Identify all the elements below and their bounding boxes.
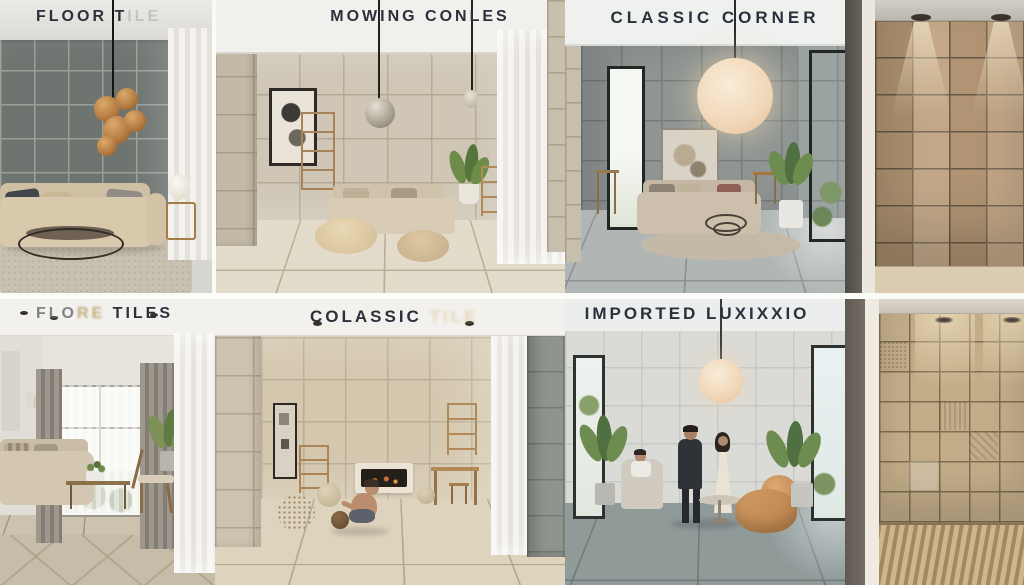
round-table-leg [718,500,721,520]
plant-pot [459,184,479,204]
ladder-shelf [301,112,335,190]
label-text-main: COLASSIC [310,307,422,326]
wall-tiles-pale [565,329,845,503]
recessed-spotlight [1003,317,1021,323]
sofa-base [0,451,94,505]
panel-label-classic-corner: CLASSIC CORNER [610,8,819,28]
tile-showroom-collage: FLOOR TILE [0,0,1024,585]
dark-pillar [845,0,862,293]
recessed-spotlight [935,317,953,323]
panel-top-right-classic-corner: CLASSIC CORNER [565,0,845,293]
sofa-arm [146,193,166,245]
ceiling-spotlight [20,311,28,315]
label-text-dark: TILES [105,305,173,322]
coffee-table-leg [70,485,72,509]
man-leg [693,485,700,523]
label-text-main: IMPORTED LUXIXXIO [585,304,810,323]
label-text-main: MOWING CONLES [330,8,509,25]
spotlight-glow [983,311,1024,411]
chair-leg [140,483,143,513]
tile-pattern-diagonal [969,431,998,460]
wire-coffee-table-small [713,222,741,236]
wood-ball-pendant [116,88,138,110]
spotlight-glow [915,311,975,411]
panel-bottom-middle-beige-playroom: COLASSIC TILE [215,299,565,585]
stone-ball-small [417,487,435,504]
desk-leg [434,471,437,505]
pillar-tiles-grey-right [527,299,565,557]
tile-pattern-dots [879,341,908,370]
man-suit-torso [678,439,702,489]
collage-bottom-row: FLORE TILES [0,299,1024,585]
panel-bottom-right-imported-lux-lounge: IMPORTED LUXIXXIO [565,299,845,585]
pouf [397,230,449,262]
coffee-table-leg [124,485,126,509]
seated-person-torso [631,461,651,477]
panel-label-colassic: COLASSIC TILE [310,307,478,327]
panel-divider [212,0,216,293]
stone-ball-medium [317,483,341,507]
floor-cushion [315,218,377,254]
coffee-table-frame [18,228,124,260]
plant-pot [791,483,813,507]
sheer-curtain [491,327,531,555]
panel-top-left-grey-living-room: FLOOR TILE [0,0,215,293]
console-table-leg [755,174,757,204]
table-plant [84,459,106,473]
side-table-leg [597,172,599,214]
desk-leg [474,471,477,505]
collage-top-row: FLOOR TILE [0,0,1024,293]
man-leg [682,485,689,523]
ball-pendant [699,359,743,403]
side-table-leg [614,172,616,214]
side-table-gold [166,202,196,240]
label-text-grey: FLO [36,305,77,322]
woman-face [718,436,728,446]
stone-ball-large [277,495,315,531]
wall-lamp [26,391,32,407]
ladder-shelf [447,403,477,455]
chair-seat [138,475,174,483]
man-hair [683,425,698,432]
label-text-main: FLOOR T [36,8,127,25]
pillar-tiles-right [547,0,565,252]
sheer-curtain-far-right [174,333,215,573]
window-right [809,50,845,242]
label-text-faint: ILE [127,8,161,25]
seated-person-hair [634,449,646,455]
panel-bottom-far-right-textured-wall [845,299,1024,585]
tall-picture-frame [273,403,297,479]
wall-edge-strip [862,0,875,293]
panel-top-middle-beige-lounge: MOWING CONLES [215,0,565,293]
ball-pendant [697,58,773,134]
panel-label-imported-lux: IMPORTED LUXIXXIO [585,304,810,324]
label-text-main: CLASSIC CORNER [610,8,819,27]
plant-pot-white [779,200,803,228]
dark-pillar [845,299,865,585]
wall-art-abstract [661,128,719,188]
panel-top-far-right-travertine-wall [845,0,1024,293]
panel-label-mowing-conles: MOWING CONLES [330,8,509,26]
pillar-tiles-left [215,299,261,547]
round-table-base [711,518,729,523]
panel-label-flor-tiles: FLORE TILES [36,305,173,323]
recessed-spotlight [911,14,931,21]
desk-top [431,467,479,471]
tile-pattern-light [909,461,938,490]
orange-sculptural-chair [735,489,797,533]
label-text-gold: RE [77,305,105,322]
sphere-pendant [365,98,395,128]
wood-ball-pendant [97,136,117,156]
child-hair [364,479,379,487]
child-shorts [349,509,375,523]
panel-bottom-left-curtain-living-room: FLORE TILES [0,299,215,585]
stool-leg [465,486,467,504]
stool-leg [451,486,453,504]
coffee-table-top [66,481,130,485]
toy-ball [331,511,349,529]
wall-edge-strip [865,299,879,585]
panel-label-floor-tile: FLOOR TILE [36,8,161,26]
recessed-spotlight [991,14,1011,21]
label-text-gold-faint: TILE [430,307,479,326]
faint-wall-art [2,351,20,431]
plant-pot [595,483,615,505]
wood-ball-pendant [124,110,146,132]
